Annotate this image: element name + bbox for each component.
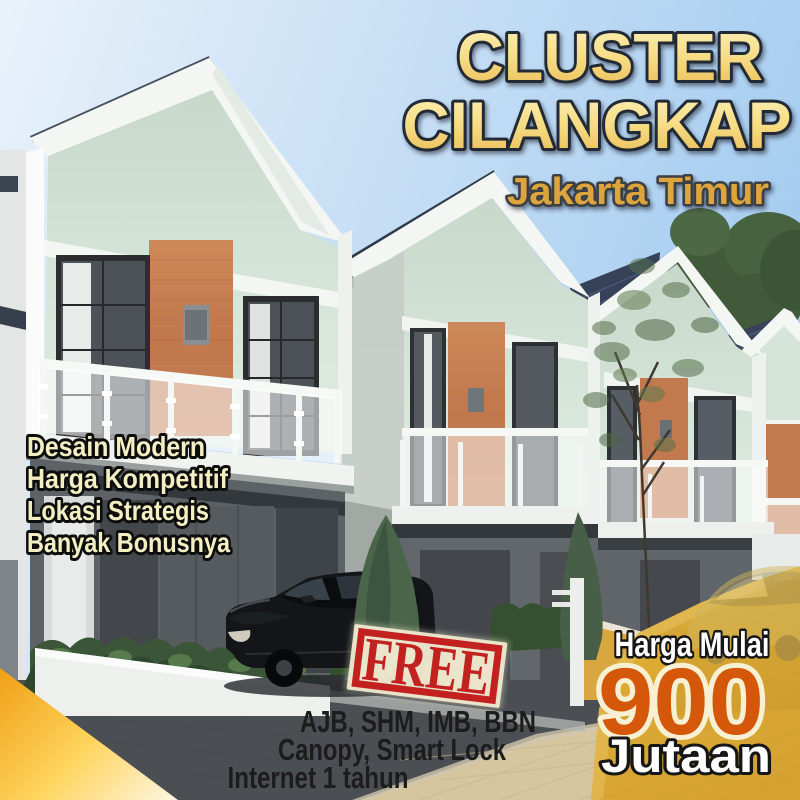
svg-text:Jutaan: Jutaan bbox=[601, 729, 771, 782]
svg-text:Banyak Bonusnya: Banyak Bonusnya bbox=[27, 527, 230, 558]
svg-text:Jakarta Timur: Jakarta Timur bbox=[507, 171, 769, 213]
svg-text:Internet 1 tahun: Internet 1 tahun bbox=[228, 760, 409, 795]
svg-text:Lokasi Strategis: Lokasi Strategis bbox=[27, 495, 209, 526]
svg-text:Harga Kompetitif: Harga Kompetitif bbox=[27, 463, 229, 494]
svg-text:CLUSTER: CLUSTER bbox=[457, 20, 763, 95]
svg-text:CILANGKAP: CILANGKAP bbox=[403, 88, 792, 162]
svg-text:Desain Modern: Desain Modern bbox=[27, 431, 205, 462]
